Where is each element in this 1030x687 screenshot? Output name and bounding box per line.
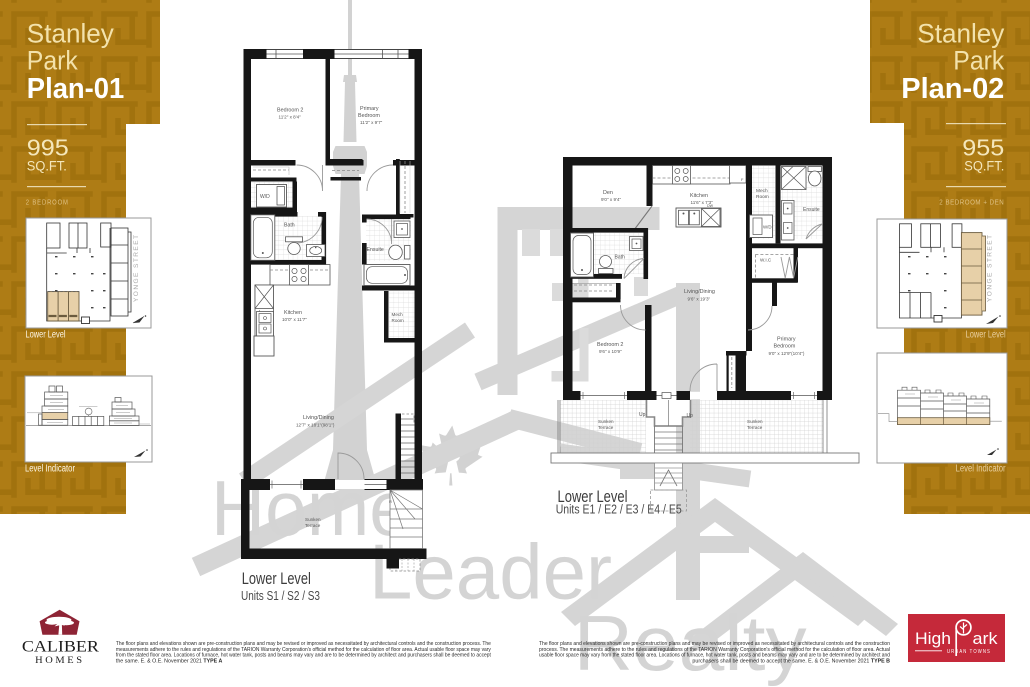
- svg-text:Up: Up: [639, 412, 646, 418]
- svg-text:R: R: [389, 499, 392, 504]
- svg-text:Park: Park: [953, 45, 1005, 75]
- svg-text:SQ.FT.: SQ.FT.: [27, 159, 67, 174]
- svg-text:Living/Dining: Living/Dining: [303, 415, 334, 421]
- svg-text:2 BEDROOM: 2 BEDROOM: [26, 200, 69, 207]
- svg-text:Bath: Bath: [284, 223, 295, 229]
- svg-text:Kitchen: Kitchen: [690, 193, 708, 199]
- svg-text:Ensuite: Ensuite: [367, 247, 384, 253]
- svg-text:YONGE STREET: YONGE STREET: [987, 234, 994, 302]
- svg-text:Sunken: Sunken: [747, 419, 763, 424]
- svg-text:12'7" x 18'1"(98'1"): 12'7" x 18'1"(98'1"): [296, 423, 335, 428]
- svg-text:Level Indicator: Level Indicator: [956, 464, 1007, 475]
- svg-text:Lower Level: Lower Level: [966, 330, 1006, 341]
- svg-text:2 BEDROOM + DEN: 2 BEDROOM + DEN: [939, 200, 1004, 207]
- svg-text:ark: ark: [973, 629, 999, 648]
- svg-text:Bedroom: Bedroom: [774, 344, 796, 350]
- svg-text:purchasers shall be deemed to: purchasers shall be deemed to accept the…: [692, 659, 890, 665]
- svg-text:Level Indicator: Level Indicator: [25, 464, 76, 475]
- svg-text:Sunken: Sunken: [598, 419, 614, 424]
- svg-text:Stanley: Stanley: [917, 19, 1005, 49]
- svg-text:Mech: Mech: [392, 312, 404, 317]
- svg-text:Sunken: Sunken: [305, 517, 321, 522]
- svg-text:Stanley: Stanley: [27, 19, 115, 49]
- svg-text:11'2" x 8'4": 11'2" x 8'4": [279, 115, 302, 120]
- svg-text:9'6" x 19'3": 9'6" x 19'3": [688, 297, 711, 302]
- svg-text:Up: Up: [687, 413, 694, 419]
- svg-text:Bedroom: Bedroom: [358, 113, 380, 119]
- svg-text:W.I.C: W.I.C: [760, 258, 772, 263]
- svg-text:Ensuite: Ensuite: [803, 207, 820, 213]
- svg-text:Living/Dining: Living/Dining: [684, 289, 715, 295]
- svg-text:9'0" x 9'4": 9'0" x 9'4": [601, 197, 621, 202]
- svg-text:W/D: W/D: [260, 194, 270, 200]
- svg-text:Plan-02: Plan-02: [901, 73, 1004, 105]
- svg-text:Units E1 / E2 / E3 / E4 / E5: Units E1 / E2 / E3 / E4 / E5: [556, 502, 682, 517]
- svg-text:W/D: W/D: [763, 225, 772, 230]
- svg-text:Den: Den: [603, 190, 613, 196]
- svg-text:Lower Level: Lower Level: [26, 330, 66, 341]
- svg-text:H O M E S: H O M E S: [35, 656, 82, 666]
- svg-text:955: 955: [962, 135, 1004, 161]
- svg-text:CALIBER: CALIBER: [22, 638, 99, 655]
- svg-text:SQ.FT.: SQ.FT.: [964, 159, 1004, 174]
- svg-text:Plan-01: Plan-01: [27, 73, 125, 105]
- svg-text:Room: Room: [756, 194, 769, 200]
- svg-text:YONGE STREET: YONGE STREET: [133, 234, 140, 302]
- svg-text:Kitchen: Kitchen: [284, 310, 302, 316]
- svg-text:Units S1 / S2 / S3: Units S1 / S2 / S3: [241, 588, 320, 603]
- svg-text:9'6" x 10'9": 9'6" x 10'9": [599, 349, 622, 354]
- svg-text:9'0" x 12'9"(10'4"): 9'0" x 12'9"(10'4"): [769, 351, 805, 356]
- svg-text:URBAN TOWNS: URBAN TOWNS: [947, 649, 991, 655]
- svg-text:Park: Park: [27, 45, 79, 75]
- svg-text:Bedroom 2: Bedroom 2: [597, 342, 623, 348]
- svg-text:Bath: Bath: [615, 255, 626, 261]
- svg-text:11'2" x 9'7": 11'2" x 9'7": [360, 120, 383, 125]
- svg-text:Terrace: Terrace: [305, 523, 321, 528]
- svg-text:Lower Level: Lower Level: [242, 570, 311, 588]
- svg-text:Terrace: Terrace: [598, 425, 614, 430]
- svg-text:995: 995: [27, 135, 69, 161]
- svg-text:Mech: Mech: [756, 188, 768, 194]
- svg-text:the same. E. & O.E. November: the same. E. & O.E. November 2021 TYPE A: [116, 659, 223, 665]
- svg-text:DW: DW: [707, 204, 714, 208]
- svg-text:Room: Room: [392, 318, 404, 323]
- svg-text:Primary: Primary: [360, 106, 379, 112]
- svg-text:Terrace: Terrace: [747, 425, 763, 430]
- svg-text:10'0" x 11'7": 10'0" x 11'7": [282, 317, 307, 322]
- svg-text:High: High: [915, 629, 951, 648]
- svg-text:Primary: Primary: [777, 337, 796, 343]
- svg-text:Bedroom 2: Bedroom 2: [277, 108, 303, 114]
